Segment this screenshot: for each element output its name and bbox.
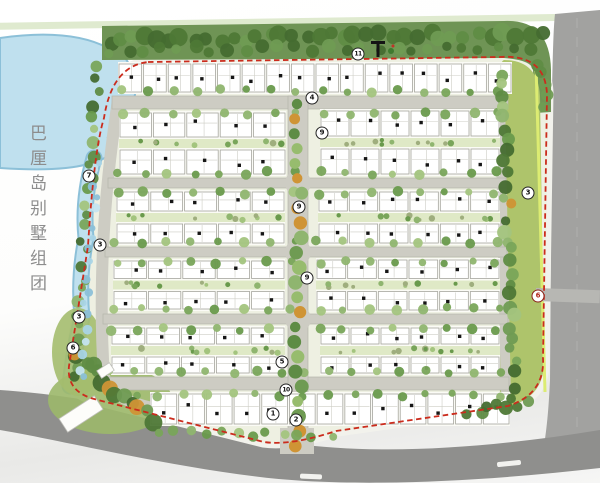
marker-6: 6 — [67, 342, 80, 355]
marker-3: 3 — [94, 239, 107, 252]
marker-4: 4 — [306, 92, 319, 105]
marker-7: 7 — [83, 170, 96, 183]
marker-3: 3 — [73, 311, 86, 324]
marker-2: 2 — [290, 414, 303, 427]
site-plan: 巴厘岛别墅组团 73361149995101236 — [0, 0, 600, 483]
marker-9: 9 — [293, 201, 306, 214]
marker-11: 11 — [352, 48, 365, 61]
marker-9: 9 — [301, 272, 314, 285]
marker-10: 10 — [280, 384, 293, 397]
plan-canvas — [0, 0, 600, 483]
marker-5: 5 — [276, 356, 289, 369]
marker-6-entrance: 6 — [532, 290, 545, 303]
marker-1: 1 — [267, 408, 280, 421]
marker-9: 9 — [316, 127, 329, 140]
marker-3: 3 — [522, 187, 535, 200]
plan-title: 巴厘岛别墅组团 — [24, 124, 49, 299]
